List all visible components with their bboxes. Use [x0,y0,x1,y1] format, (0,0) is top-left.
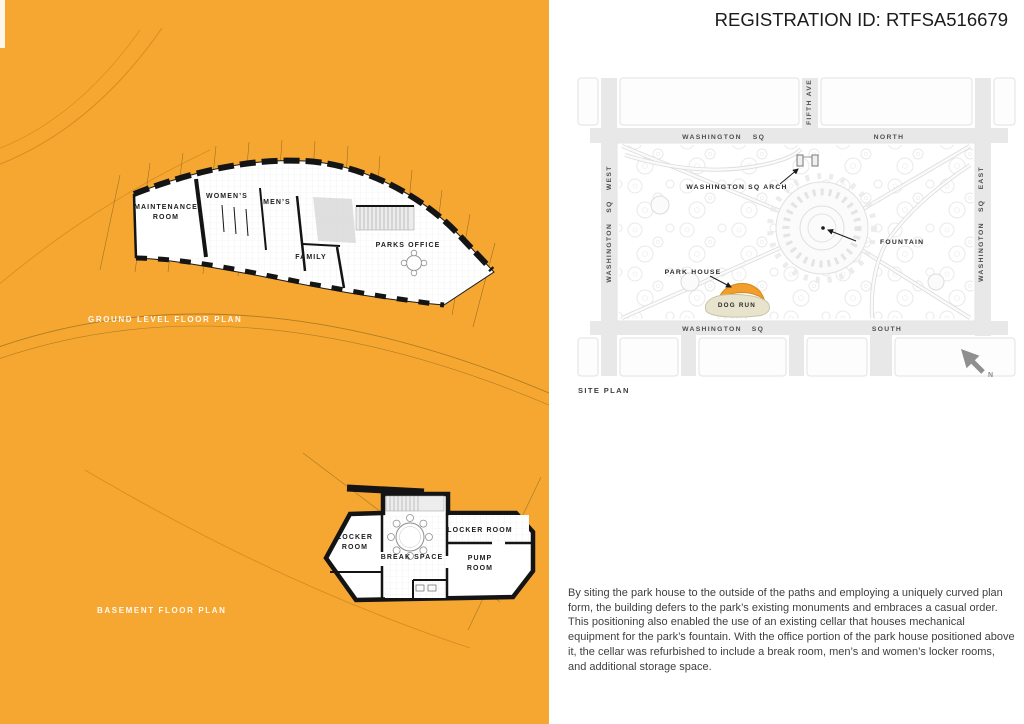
park-house-label: PARK HOUSE [665,269,722,276]
park [617,143,975,321]
pump-room-label-line2: ROOM [467,565,493,572]
registration-id: REGISTRATION ID: RTFSA516679 [715,9,1008,31]
site-plan: WASHINGTON SQ NORTH WASHINGTON SQ SOUTH … [578,78,1015,395]
locker-right-label: LOCKER ROOM [447,527,512,534]
pump-room-label-line1: PUMP [468,555,493,562]
fountain-label: FOUNTAIN [880,239,924,246]
mens-room-label: MEN’S [263,199,291,206]
locker-left-label-line1: LOCKER [337,534,373,541]
street-washington-sq-west-label: WASHINGTON SQ WEST [606,165,613,282]
street-sq-north-label: SQ [753,134,765,141]
locker-left-label-line2: ROOM [342,544,368,551]
arch-label: WASHINGTON SQ ARCH [686,184,787,191]
maintenance-room-label-line2: ROOM [153,214,179,221]
maintenance-room-label-line1: MAINTENANCE [134,204,198,211]
street-north-label: NORTH [874,134,905,141]
orange-panel: MAINTENANCE ROOM WOMEN’S MEN’S FAMILY PA… [0,0,549,724]
ground-stairs [356,206,414,230]
street-fifth-ave-label: FIFTH AVE [806,79,813,125]
street-washington-south-label: WASHINGTON [682,326,742,333]
street-washington-north-label: WASHINGTON [682,134,742,141]
break-space-label: BREAK SPACE [381,554,444,561]
family-room-label: FAMILY [295,254,327,261]
basement-stairs [386,496,444,511]
vestibule [313,197,356,243]
parks-office-label: PARKS OFFICE [376,242,441,249]
site-plan-caption: SITE PLAN [578,386,630,395]
ground-plan-caption: GROUND LEVEL FLOOR PLAN [88,315,242,324]
break-table [388,515,433,560]
street-washington-sq-east-label: WASHINGTON SQ EAST [978,166,985,282]
dog-run-label: DOG RUN [718,302,756,309]
description-paragraph: By siting the park house to the outside … [568,586,1016,674]
street-sq-south-label: SQ [752,326,764,333]
basement-plan-caption: BASEMENT FLOOR PLAN [97,606,227,615]
presentation-board: MAINTENANCE ROOM WOMEN’S MEN’S FAMILY PA… [0,0,1024,724]
white-corner-notch [0,0,5,48]
street-south-label: SOUTH [872,326,902,333]
basement-entry-bar [347,488,424,492]
north-letter: N [988,372,993,379]
womens-room-label: WOMEN’S [206,193,248,200]
